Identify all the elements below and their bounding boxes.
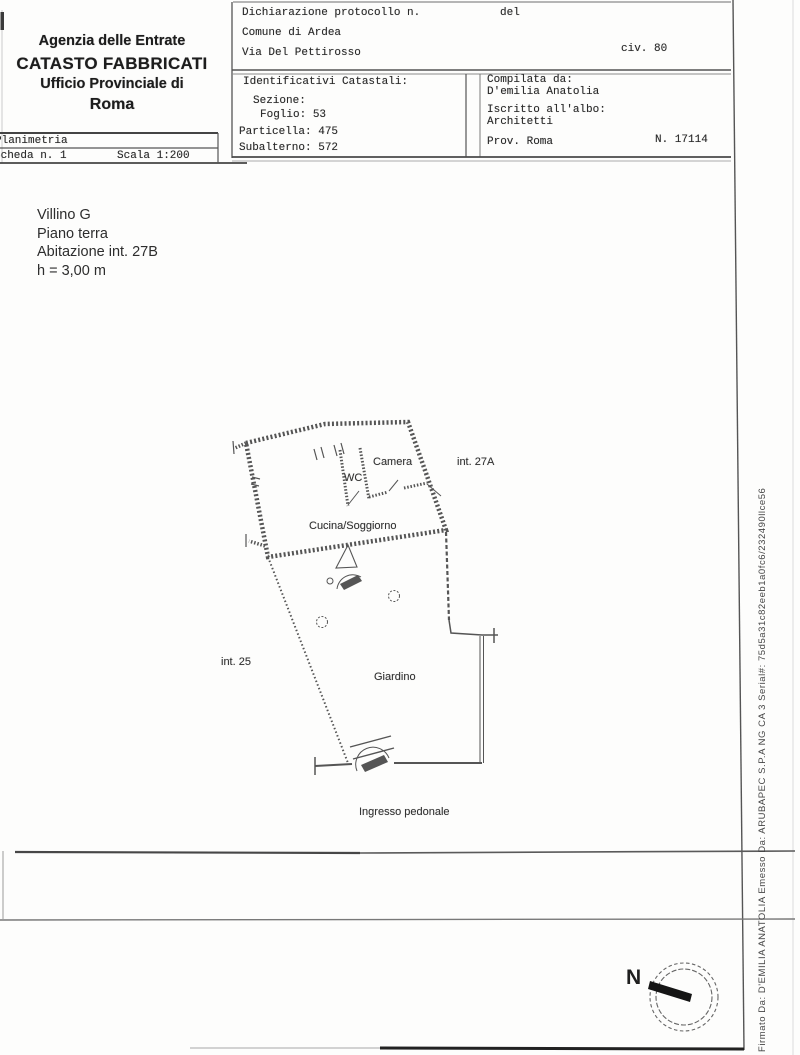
agency-line3: Ufficio Provinciale di — [6, 76, 218, 92]
sheet-number-label: Scheda n. 1 — [0, 150, 67, 163]
registered-order: Architetti — [487, 116, 553, 129]
subalterno-row: Subalterno: 572 — [239, 142, 338, 155]
digital-signature-strip: Firmato Da: D'EMILIA ANATOLIA Emesso Da:… — [757, 388, 771, 1052]
foglio-value: 53 — [313, 109, 326, 121]
property-description: Villino G Piano terra Abitazione int. 27… — [37, 206, 158, 280]
scale-label: Scala 1:200 — [117, 150, 190, 163]
sezione-label: Sezione: — [253, 95, 306, 107]
room-label-garden: Giardino — [374, 671, 416, 683]
protocol-label: Dichiarazione protocollo n. — [242, 7, 420, 20]
room-label-bedroom: Camera — [373, 456, 412, 468]
label-adjacent-unit-right: int. 27A — [457, 456, 494, 468]
room-label-kitchen-living: Cucina/Soggiorno — [309, 520, 396, 532]
particella-value: 475 — [318, 126, 338, 138]
sezione-row: Sezione: — [253, 95, 312, 108]
agency-line1: Agenzia delle Entrate — [6, 33, 218, 49]
particella-row: Particella: 475 — [239, 126, 338, 139]
compass-icon — [648, 963, 718, 1031]
property-floor: Piano terra — [37, 225, 158, 244]
label-pedestrian-entrance: Ingresso pedonale — [359, 806, 450, 818]
civic-number: civ. 80 — [621, 43, 667, 56]
cadastral-title: Identificativi Catastali: — [243, 76, 408, 89]
registration-number: N. 17114 — [655, 134, 708, 147]
compiled-by-name: D'emilia Anatolia — [487, 86, 599, 99]
agency-line2: CATASTO FABBRICATI — [6, 54, 218, 74]
sheet-info-table: Planimetria Scheda n. 1 Scala 1:200 — [0, 133, 218, 163]
subalterno-value: 572 — [318, 142, 338, 154]
foglio-row: Foglio: 53 — [260, 109, 326, 122]
subalterno-label: Subalterno: — [239, 142, 312, 154]
province: Prov. Roma — [487, 136, 553, 149]
sheet-type-label: Planimetria — [0, 135, 68, 148]
property-height: h = 3,00 m — [37, 262, 158, 281]
property-name: Villino G — [37, 206, 158, 225]
scanned-cadastral-document: Agenzia delle Entrate CATASTO FABBRICATI… — [0, 0, 800, 1055]
protocol-date-label: del — [500, 7, 520, 20]
municipality: Comune di Ardea — [242, 27, 341, 40]
street-address: Via Del Pettirosso — [242, 47, 361, 60]
compass-north-label: N — [626, 966, 641, 990]
room-label-bathroom: WC — [344, 472, 362, 484]
agency-line4: Roma — [6, 96, 218, 114]
label-adjacent-unit-left: int. 25 — [221, 656, 251, 668]
property-unit: Abitazione int. 27B — [37, 243, 158, 262]
particella-label: Particella: — [239, 126, 312, 138]
foglio-label: Foglio: — [260, 109, 306, 121]
